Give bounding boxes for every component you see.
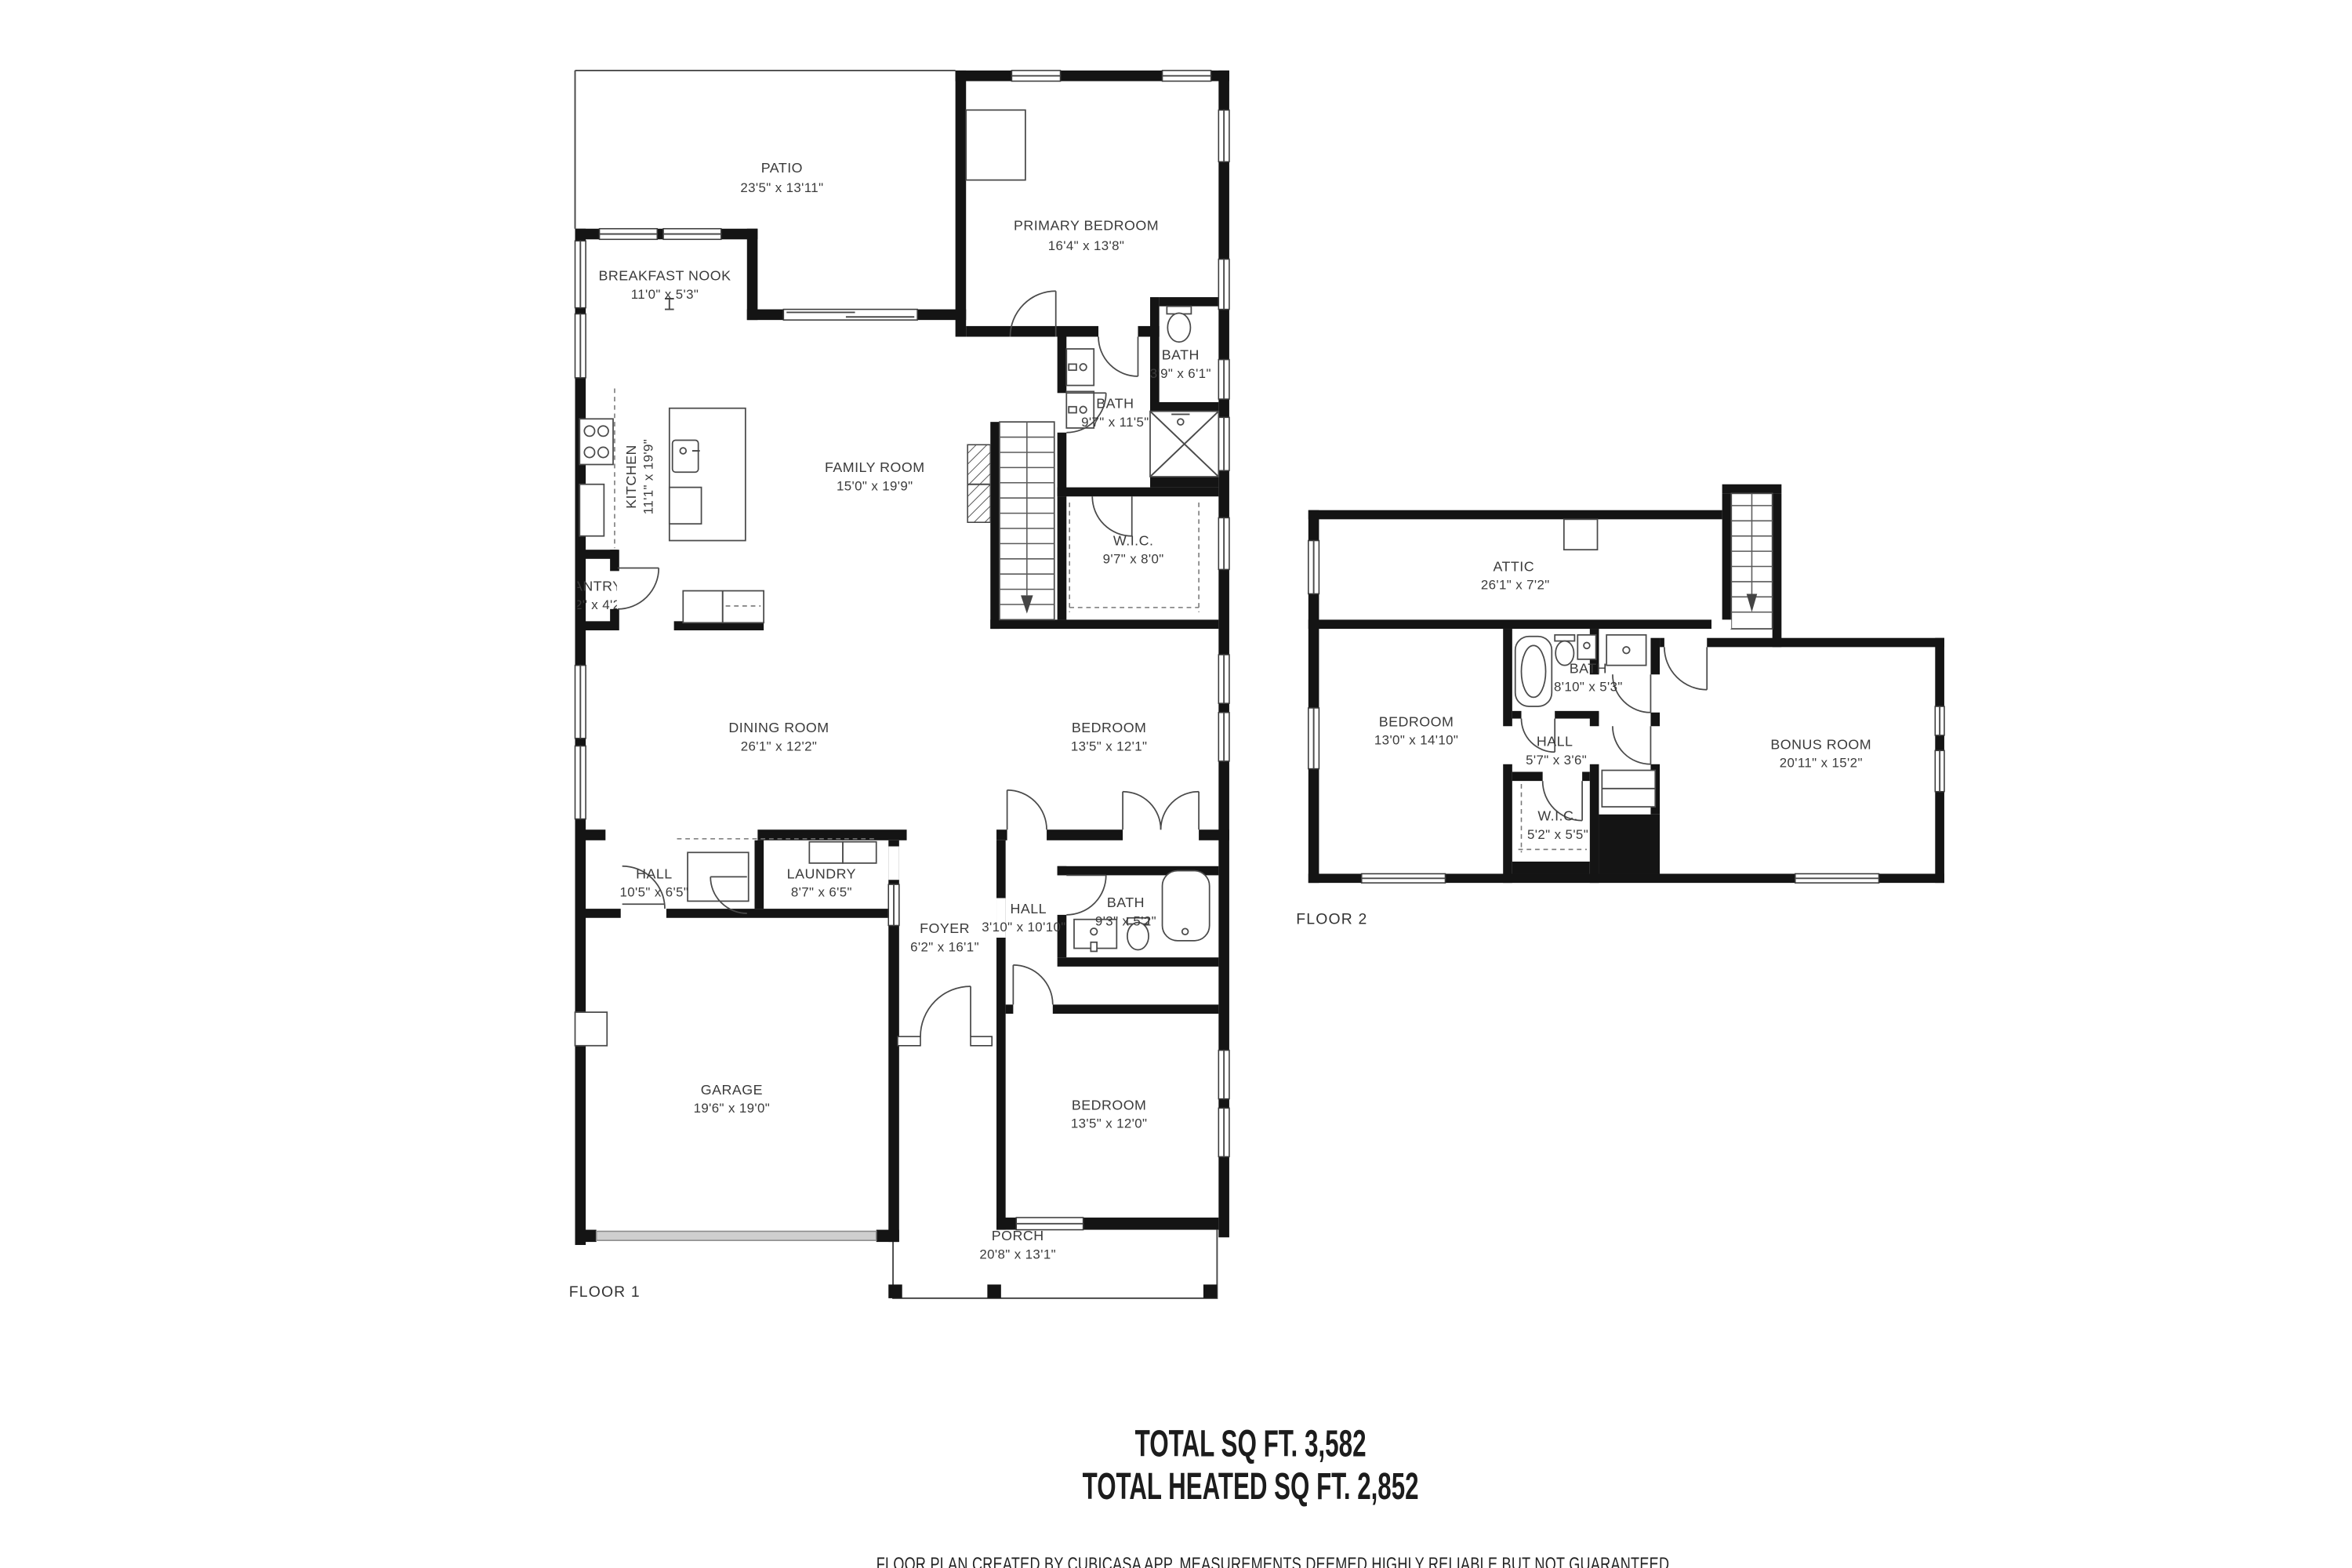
- sliding-door: [783, 310, 917, 321]
- window: [575, 314, 586, 378]
- floor2-plan: ATTIC 26'1" x 7'2" BEDROOM 13'0" x 14'10…: [1296, 485, 1944, 928]
- floor1-walls: [575, 71, 1229, 1245]
- room-label-primary-bedroom: PRIMARY BEDROOM: [1014, 218, 1159, 234]
- porch-post: [888, 1284, 902, 1298]
- window: [1362, 873, 1446, 883]
- window: [1218, 1051, 1229, 1099]
- floor2-title: FLOOR 2: [1296, 911, 1367, 928]
- room-label-f2-bath: BATH: [1570, 660, 1607, 676]
- primary-closet: [966, 110, 1025, 180]
- staircase: [1000, 422, 1054, 619]
- window: [1218, 517, 1229, 569]
- room-dims-hall1: 10'5" x 6'5": [619, 885, 688, 900]
- window: [1218, 713, 1229, 761]
- room-dims-garage: 19'6" x 19'0": [694, 1101, 771, 1116]
- window: [1308, 541, 1319, 594]
- window: [575, 241, 586, 307]
- shower: [1150, 412, 1218, 477]
- room-dims-f2-bedroom: 13'0" x 14'10": [1374, 733, 1458, 748]
- room-dims-bedroom1: 13'5" x 12'1": [1071, 739, 1148, 753]
- window: [1795, 873, 1879, 883]
- door: [618, 568, 659, 608]
- stove: [579, 419, 613, 464]
- room-label-dining-room: DINING ROOM: [728, 720, 829, 735]
- front-door-sidelight: [898, 1036, 992, 1046]
- room-label-patio: PATIO: [761, 160, 803, 176]
- window: [575, 746, 586, 818]
- room-label-bonus-room: BONUS ROOM: [1770, 736, 1871, 752]
- room-label-f2-hall: HALL: [1537, 733, 1573, 749]
- attic-equipment: [1564, 519, 1598, 550]
- door: [1098, 336, 1138, 376]
- room-label-laundry: LAUNDRY: [787, 866, 856, 881]
- room-label-attic: ATTIC: [1493, 558, 1534, 574]
- room-label-f2-wic: W.I.C.: [1537, 808, 1577, 824]
- window: [1218, 260, 1229, 310]
- floor-plan-page: PATIO 23'5" x 13'11" PRIMARY BEDROOM 16'…: [0, 0, 2352, 1568]
- kitchen-island: [670, 408, 746, 541]
- floor-plan-canvas: PATIO 23'5" x 13'11" PRIMARY BEDROOM 16'…: [0, 0, 2352, 1568]
- room-dims-attic: 26'1" x 7'2": [1481, 578, 1550, 593]
- room-dims-bedroom2: 13'5" x 12'0": [1071, 1116, 1148, 1131]
- patio-outline: [575, 71, 956, 229]
- room-label-foyer: FOYER: [920, 920, 970, 936]
- window: [1163, 71, 1211, 82]
- room-dims-laundry: 8'7" x 6'5": [791, 885, 852, 900]
- door: [1123, 792, 1161, 830]
- room-label-bedroom2: BEDROOM: [1072, 1097, 1147, 1112]
- porch-post: [1203, 1284, 1217, 1298]
- room-label-wic: W.I.C.: [1113, 532, 1153, 548]
- window: [1218, 110, 1229, 162]
- window: [600, 229, 658, 240]
- summary-block: TOTAL SQ FT. 3,582 TOTAL HEATED SQ FT. 2…: [877, 1423, 1674, 1568]
- room-dims-kitchen: 11'1" x 19'9": [641, 439, 655, 514]
- total-heated-sqft-text: TOTAL HEATED SQ FT. 2,852: [1083, 1465, 1419, 1508]
- room-dims-porch: 20'8" x 13'1": [979, 1247, 1056, 1261]
- fireplace: [967, 445, 990, 522]
- hall-bath-fixtures: [1074, 871, 1210, 952]
- floor1-plan: PATIO 23'5" x 13'11" PRIMARY BEDROOM 16'…: [564, 71, 1229, 1301]
- cabinet: [683, 591, 764, 623]
- room-label-kitchen: KITCHEN: [623, 445, 639, 509]
- room-label-bath-primary: BATH: [1096, 396, 1134, 412]
- window: [1935, 706, 1944, 735]
- floor1-labels: PATIO 23'5" x 13'11" PRIMARY BEDROOM 16'…: [564, 160, 1211, 1262]
- floor1-title: FLOOR 1: [569, 1283, 641, 1301]
- room-label-garage: GARAGE: [701, 1082, 763, 1098]
- porch-post: [987, 1284, 1000, 1298]
- room-label-hall-bath: BATH: [1107, 895, 1145, 910]
- garage-door: [597, 1232, 877, 1241]
- disclaimer-text: FLOOR PLAN CREATED BY CUBICASA APP. MEAS…: [877, 1554, 1674, 1568]
- total-sqft-text: TOTAL SQ FT. 3,582: [1135, 1423, 1367, 1465]
- kitchen-counter: [579, 485, 604, 536]
- room-label-f2-bedroom: BEDROOM: [1379, 713, 1454, 729]
- room-dims-wic: 9'7" x 8'0": [1103, 552, 1164, 567]
- room-label-breakfast-nook: BREAKFAST NOOK: [598, 268, 731, 284]
- door: [1161, 792, 1200, 830]
- room-label-porch: PORCH: [992, 1228, 1044, 1243]
- toilet: [1167, 307, 1191, 343]
- room-dims-f2-bath: 8'10" x 5'3": [1554, 680, 1623, 695]
- room-dims-f2-wic: 5'2" x 5'5": [1527, 827, 1588, 842]
- window: [1011, 71, 1060, 82]
- floor1-windows: [575, 71, 1229, 1230]
- room-label-family-room: FAMILY ROOM: [825, 459, 925, 475]
- room-dims-bath-primary: 9'7" x 11'5": [1081, 415, 1149, 430]
- window: [888, 884, 899, 925]
- room-label-hall2: HALL: [1010, 901, 1047, 916]
- room-dims-family-room: 15'0" x 19'9": [837, 478, 913, 493]
- room-label-bedroom1: BEDROOM: [1072, 720, 1147, 735]
- room-dims-f2-hall: 5'7" x 3'6": [1526, 753, 1587, 768]
- door: [1066, 875, 1105, 914]
- room-dims-bonus-room: 20'11" x 15'2": [1780, 756, 1863, 771]
- room-label-bath-small: BATH: [1162, 347, 1200, 363]
- room-dims-bath-small: 3'9" x 6'1": [1150, 366, 1211, 381]
- window: [1935, 750, 1944, 791]
- room-dims-hall2: 3'10" x 10'10": [982, 920, 1065, 935]
- room-dims-pantry: 2'2" x 4'2": [564, 597, 626, 612]
- window: [663, 229, 721, 240]
- window: [1218, 1108, 1229, 1156]
- room-dims-hall-bath: 9'3" x 5'2": [1095, 913, 1156, 928]
- room-dims-patio: 23'5" x 13'11": [740, 180, 823, 195]
- window: [1218, 655, 1229, 703]
- room-dims-breakfast-nook: 11'0" x 5'3": [631, 287, 699, 302]
- window: [1218, 417, 1229, 470]
- window: [575, 666, 586, 739]
- door: [1613, 726, 1651, 764]
- door: [1092, 496, 1131, 535]
- door: [1664, 647, 1707, 689]
- floor2-walls: [1308, 485, 1944, 883]
- room-label-pantry: PANTRY: [564, 579, 622, 594]
- room-dims-foyer: 6'2" x 16'1": [910, 939, 979, 954]
- room-label-hall1: HALL: [636, 866, 673, 881]
- room-dims-dining-room: 26'1" x 12'2": [741, 739, 818, 753]
- window: [1308, 708, 1319, 769]
- door: [920, 986, 971, 1036]
- floor2-cabinet: [1602, 771, 1655, 808]
- garage-window: [575, 1012, 608, 1046]
- window: [1218, 360, 1229, 399]
- door: [1013, 965, 1052, 1004]
- door: [1007, 790, 1047, 829]
- room-dims-primary-bedroom: 16'4" x 13'8": [1048, 238, 1125, 253]
